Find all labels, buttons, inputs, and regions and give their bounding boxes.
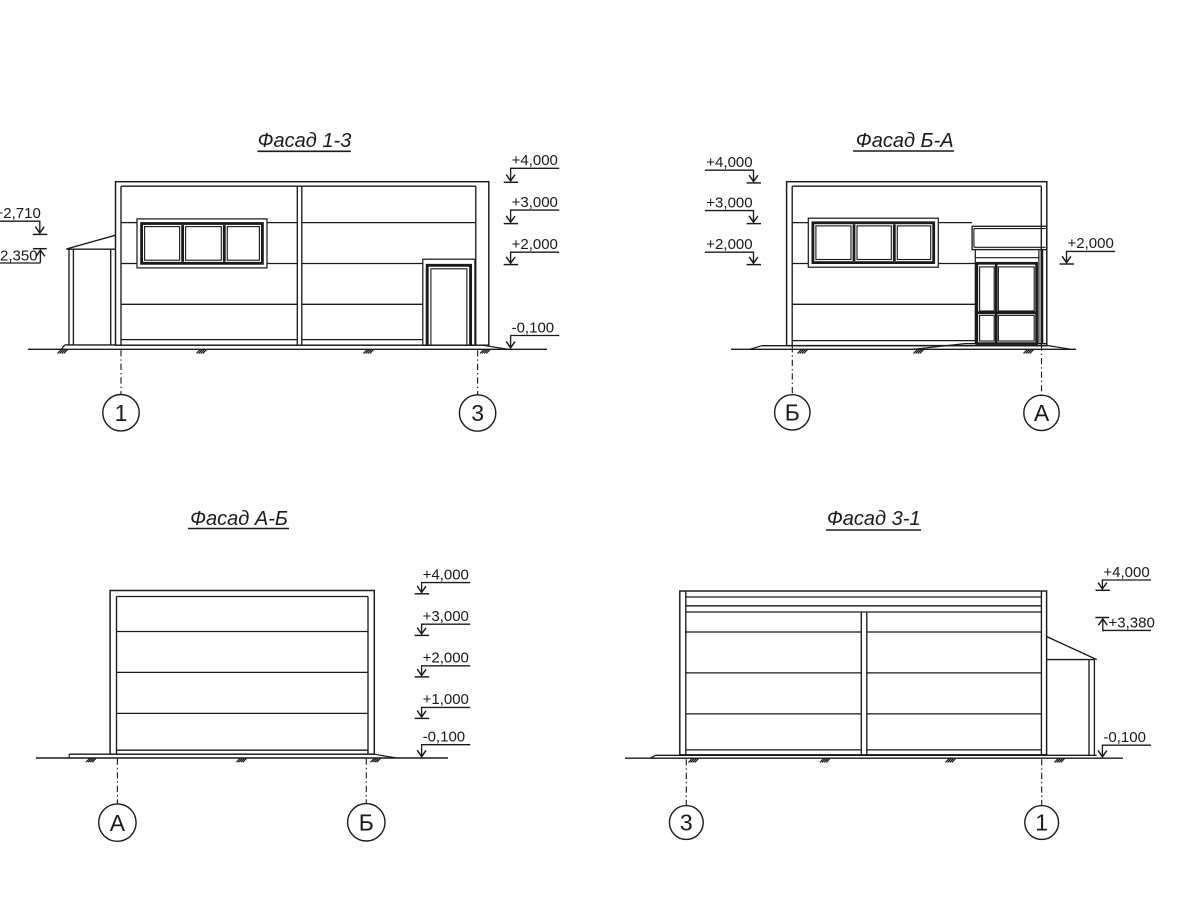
svg-text:А: А (1034, 400, 1050, 426)
svg-text:+3,000: +3,000 (423, 608, 469, 625)
svg-text:1: 1 (1035, 810, 1048, 836)
svg-text:+1,000: +1,000 (423, 691, 469, 708)
svg-text:Фасад 3-1: Фасад 3-1 (827, 508, 921, 530)
svg-text:-0,100: -0,100 (512, 319, 555, 336)
svg-text:-0,100: -0,100 (423, 729, 466, 746)
svg-text:3: 3 (680, 810, 693, 836)
svg-text:1: 1 (115, 400, 128, 426)
svg-text:+2,000: +2,000 (1068, 235, 1114, 252)
svg-text:+4,000: +4,000 (1103, 564, 1149, 581)
svg-text:+3,000: +3,000 (512, 194, 558, 211)
svg-text:Фасад Б-А: Фасад Б-А (856, 130, 954, 152)
svg-text:+2,000: +2,000 (706, 236, 752, 253)
svg-text:Б: Б (785, 400, 800, 426)
svg-text:Фасад 1-3: Фасад 1-3 (258, 130, 352, 152)
svg-text:+2,710: +2,710 (0, 205, 41, 222)
svg-text:+4,000: +4,000 (706, 154, 752, 171)
svg-text:2,350: 2,350 (0, 247, 38, 264)
svg-text:Б: Б (359, 810, 374, 836)
svg-text:+2,000: +2,000 (512, 236, 558, 253)
svg-text:А: А (110, 810, 126, 836)
svg-text:+4,000: +4,000 (423, 566, 469, 583)
svg-text:+4,000: +4,000 (512, 152, 558, 169)
svg-text:Фасад А-Б: Фасад А-Б (190, 508, 288, 530)
svg-text:3: 3 (471, 400, 484, 426)
svg-text:+2,000: +2,000 (423, 650, 469, 667)
svg-text:-0,100: -0,100 (1103, 729, 1146, 746)
svg-text:+3,000: +3,000 (706, 194, 752, 211)
svg-text:+3,380: +3,380 (1109, 615, 1155, 632)
